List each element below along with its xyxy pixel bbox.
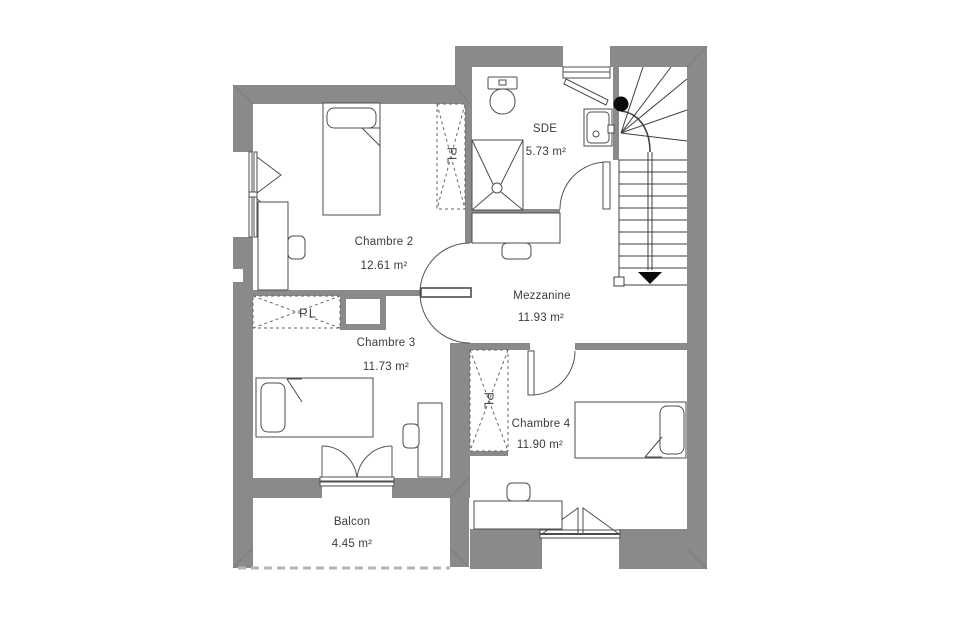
door-chambre2-3-mezzanine — [420, 243, 471, 343]
closet-label-chambre2: PL — [445, 147, 460, 165]
desk-chambre4 — [474, 483, 562, 529]
room-label-balcon: Balcon — [334, 516, 370, 528]
desk-chambre3 — [403, 403, 442, 477]
stair-down-arrow — [638, 272, 662, 284]
room-area-sde: 5.73 m² — [526, 146, 566, 158]
chair-chambre2 — [288, 236, 305, 259]
shower — [472, 140, 523, 210]
room-area-mezzanine: 11.93 m² — [518, 312, 564, 324]
room-area-chambre2: 12.61 m² — [361, 260, 408, 272]
stair-bottom-post — [614, 277, 624, 286]
sink — [584, 109, 614, 146]
closet-chambre3 — [253, 296, 340, 328]
window-sde-north — [563, 67, 610, 105]
floor-plan-page: SDE 5.73 m² Chambre 2 12.61 m² Mezzanine… — [0, 0, 960, 626]
room-label-chambre3: Chambre 3 — [357, 337, 416, 349]
bed-chambre3 — [256, 378, 373, 437]
room-label-chambre4: Chambre 4 — [512, 418, 571, 430]
closet-label-chambre4: PL — [482, 392, 497, 410]
room-label-mezzanine: Mezzanine — [513, 290, 570, 302]
floor-plan-drawing — [0, 0, 960, 626]
duct-niche — [346, 299, 380, 324]
chair-chambre3 — [403, 424, 419, 448]
room-label-chambre2: Chambre 2 — [355, 236, 414, 248]
staircase — [614, 67, 688, 286]
toilet — [488, 77, 517, 114]
chair-chambre4 — [507, 483, 530, 501]
bed-chambre2 — [323, 103, 380, 215]
room-label-sde: SDE — [533, 123, 557, 135]
chair-mezzanine — [502, 243, 531, 259]
closet-label-chambre3: PL — [299, 306, 317, 321]
room-area-chambre4: 11.90 m² — [517, 439, 563, 451]
door-sde — [560, 162, 610, 209]
room-area-balcon: 4.45 m² — [332, 538, 372, 550]
desk-chambre2 — [258, 202, 305, 290]
door-chambre4 — [528, 351, 575, 395]
desk-mezzanine — [472, 213, 560, 259]
bed-chambre4 — [575, 402, 686, 458]
stair-newel-post — [614, 97, 629, 112]
french-door-balcony — [320, 446, 394, 486]
room-area-chambre3: 11.73 m² — [363, 361, 409, 373]
